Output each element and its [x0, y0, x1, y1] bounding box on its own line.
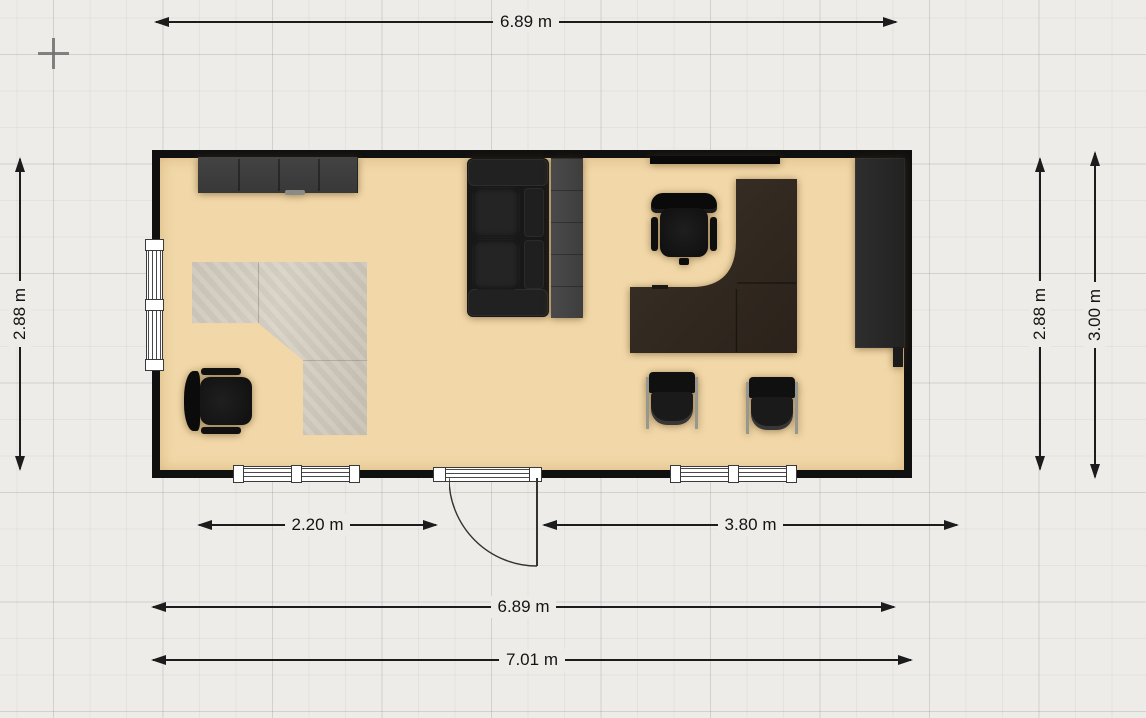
- arrow-up-icon: [15, 157, 25, 172]
- dimension-label: 2.88 m: [9, 281, 31, 347]
- chair-armrest: [710, 217, 717, 251]
- window-cap: [728, 465, 739, 483]
- arrow-right-icon: [881, 602, 896, 612]
- window-pane: [242, 468, 294, 480]
- sideboard-handle: [285, 190, 305, 195]
- visitor-chair-1[interactable]: [646, 372, 698, 433]
- window-pane: [679, 468, 731, 480]
- tall-cabinet[interactable]: [855, 158, 905, 348]
- window-cap: [786, 465, 797, 483]
- sofa-back-cushion: [524, 240, 544, 289]
- arrow-up-icon: [1035, 157, 1045, 172]
- origin-crosshair-icon: [52, 38, 55, 69]
- window-bottom-left[interactable]: [233, 466, 360, 482]
- window-cap: [670, 465, 681, 483]
- sofa-cushion: [472, 239, 520, 290]
- dimension-right-inner-height[interactable]: 2.88 m: [1028, 158, 1052, 470]
- arrow-right-icon: [898, 655, 913, 665]
- sofa[interactable]: [467, 158, 549, 317]
- window-cap: [349, 465, 360, 483]
- sofa-back-cushion: [524, 188, 544, 237]
- chair-seat: [200, 377, 252, 425]
- sofa-armrest: [468, 159, 548, 186]
- dimension-label: 2.88 m: [1029, 281, 1051, 347]
- floor-plan-canvas: 6.89 m 2.88 m 2.20 m 3.80 m 6.89 m 7.01 …: [0, 0, 1146, 718]
- window-pane: [148, 310, 161, 361]
- door-jamb: [433, 467, 446, 482]
- arrow-up-icon: [1090, 151, 1100, 166]
- sideboard-seam: [238, 159, 240, 191]
- chair-frame: [695, 377, 698, 429]
- arrow-down-icon: [1090, 464, 1100, 479]
- cabinet-notch: [893, 347, 903, 367]
- chair-armrest: [201, 427, 241, 434]
- dimension-left-height[interactable]: 2.88 m: [8, 158, 32, 470]
- bookcase[interactable]: [551, 158, 583, 318]
- chair-armrest: [201, 368, 241, 375]
- arrow-left-icon: [542, 520, 557, 530]
- desk-seam: [303, 360, 367, 361]
- window-cap: [291, 465, 302, 483]
- window-cap: [145, 239, 164, 251]
- chair-backrest: [184, 371, 200, 431]
- arrow-left-icon: [151, 602, 166, 612]
- dimension-top-width[interactable]: 6.89 m: [155, 10, 897, 34]
- arrow-left-icon: [197, 520, 212, 530]
- chair-base: [679, 258, 689, 265]
- window-left[interactable]: [146, 239, 163, 371]
- chair-seat: [660, 208, 708, 257]
- dimension-label: 2.20 m: [285, 514, 351, 536]
- dimension-label: 3.80 m: [718, 514, 784, 536]
- dimension-label: 6.89 m: [491, 596, 557, 618]
- dimension-label: 6.89 m: [493, 11, 559, 33]
- window-pane: [737, 468, 787, 480]
- arrow-right-icon: [883, 17, 898, 27]
- chair-backrest: [749, 377, 795, 398]
- window-cap: [233, 465, 244, 483]
- arrow-left-icon: [154, 17, 169, 27]
- chair-seat: [751, 397, 793, 430]
- window-cap: [145, 299, 164, 311]
- visitor-chair-2[interactable]: [746, 377, 798, 438]
- wall-board[interactable]: [650, 156, 780, 164]
- desk-seam: [258, 262, 259, 323]
- sofa-armrest: [468, 289, 548, 316]
- dimension-label: 3.00 m: [1084, 282, 1106, 348]
- door-swing-arc: [449, 478, 539, 568]
- arrow-left-icon: [151, 655, 166, 665]
- dimension-label: 7.01 m: [499, 649, 565, 671]
- office-chair-left[interactable]: [184, 368, 256, 434]
- arrow-right-icon: [423, 520, 438, 530]
- window-pane: [148, 249, 161, 302]
- arrow-down-icon: [1035, 456, 1045, 471]
- arrow-right-icon: [944, 520, 959, 530]
- window-bottom-right[interactable]: [670, 466, 797, 482]
- dimension-bottom-inner-width[interactable]: 6.89 m: [152, 595, 895, 619]
- window-cap: [145, 359, 164, 371]
- office-chair-right[interactable]: [651, 193, 717, 265]
- sofa-cushion: [472, 187, 520, 238]
- window-pane: [300, 468, 350, 480]
- sideboard-seam: [278, 159, 280, 191]
- chair-seat: [651, 392, 693, 425]
- chair-armrest: [651, 217, 658, 251]
- dimension-right-outer-height[interactable]: 3.00 m: [1083, 152, 1107, 478]
- dimension-bottom-outer-width[interactable]: 7.01 m: [152, 648, 912, 672]
- dimension-bottom-segment-right[interactable]: 3.80 m: [543, 513, 958, 537]
- dimension-bottom-segment-left[interactable]: 2.20 m: [198, 513, 437, 537]
- chair-frame: [795, 382, 798, 434]
- chair-backrest: [649, 372, 695, 393]
- sideboard[interactable]: [198, 157, 358, 193]
- arrow-down-icon: [15, 456, 25, 471]
- sideboard-seam: [318, 159, 320, 191]
